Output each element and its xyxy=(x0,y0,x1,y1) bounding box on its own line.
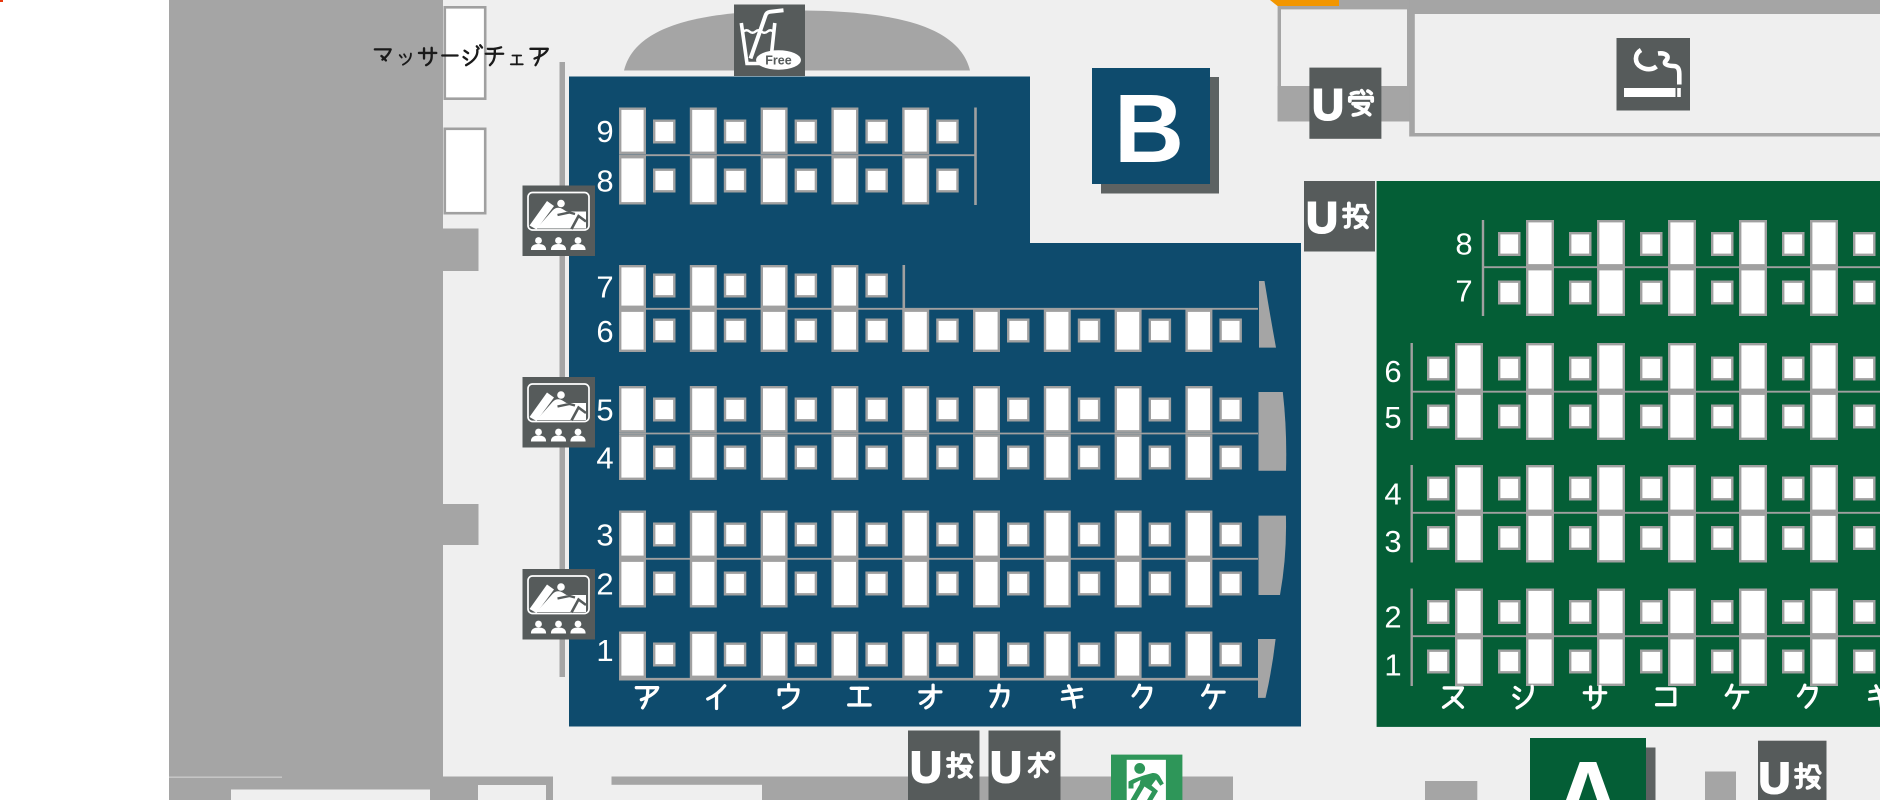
svg-text:7: 7 xyxy=(596,270,613,305)
svg-text:4: 4 xyxy=(596,440,613,475)
svg-text:6: 6 xyxy=(596,314,613,349)
svg-text:U: U xyxy=(1312,81,1344,130)
svg-text:Free: Free xyxy=(765,54,791,68)
svg-text:5: 5 xyxy=(1384,400,1401,435)
svg-text:U: U xyxy=(990,743,1022,792)
svg-text:8: 8 xyxy=(596,163,613,198)
svg-text:7: 7 xyxy=(1455,274,1472,309)
svg-text:B: B xyxy=(1114,74,1184,183)
svg-text:1: 1 xyxy=(1384,648,1401,683)
svg-text:U: U xyxy=(910,743,942,792)
svg-text:U: U xyxy=(1759,754,1791,800)
svg-text:9: 9 xyxy=(596,114,613,149)
svg-text:1: 1 xyxy=(596,633,613,668)
svg-text:3: 3 xyxy=(1384,524,1401,559)
svg-text:4: 4 xyxy=(1384,477,1401,512)
svg-text:U: U xyxy=(1306,194,1338,243)
svg-text:2: 2 xyxy=(1384,600,1401,635)
svg-text:8: 8 xyxy=(1455,227,1472,262)
svg-text:2: 2 xyxy=(596,567,613,602)
svg-text:5: 5 xyxy=(596,392,613,427)
svg-text:3: 3 xyxy=(596,517,613,552)
svg-text:A: A xyxy=(1553,741,1623,800)
svg-text:6: 6 xyxy=(1384,354,1401,389)
